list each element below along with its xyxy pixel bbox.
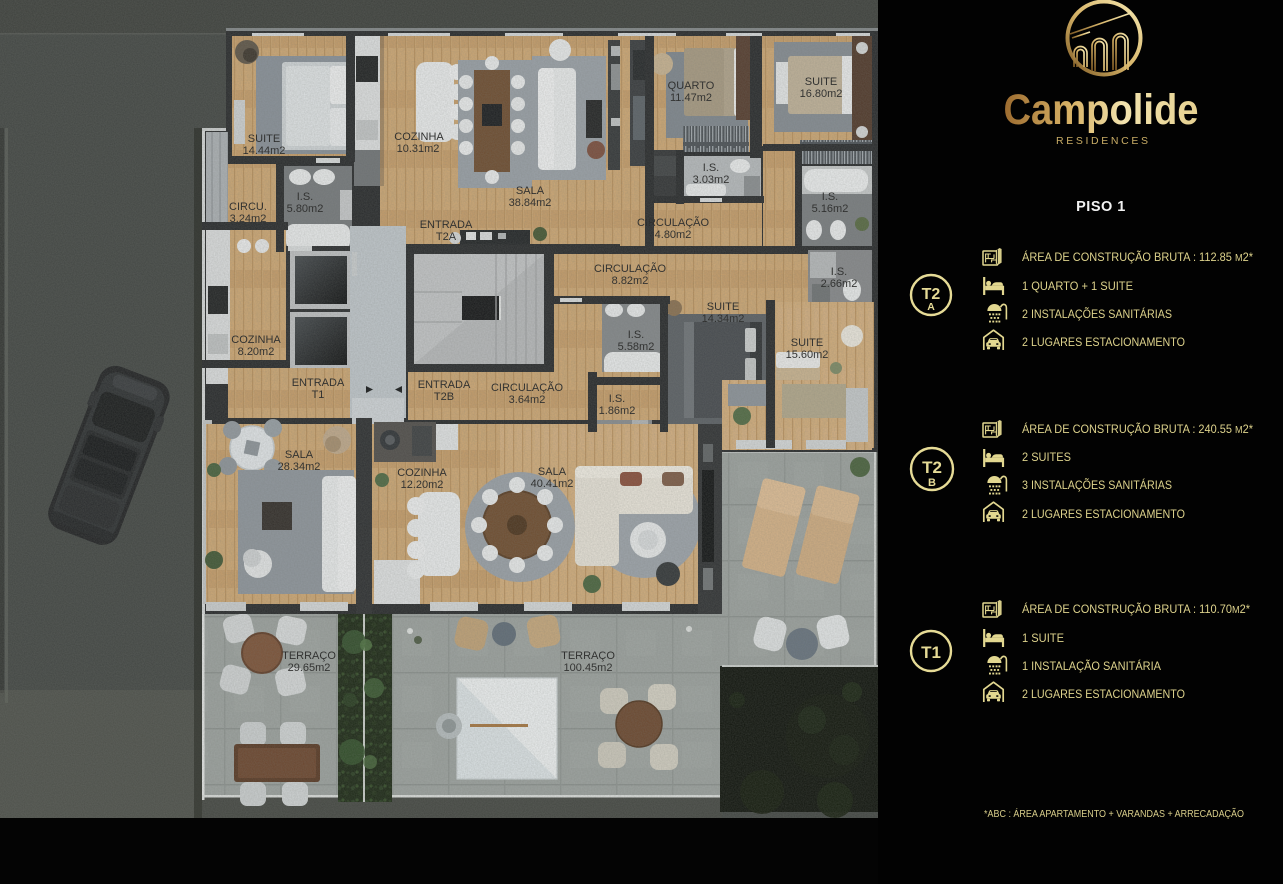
svg-text:2 LUGARES ESTACIONAMENTO: 2 LUGARES ESTACIONAMENTO — [1022, 335, 1185, 349]
svg-text:T1: T1 — [921, 643, 941, 662]
svg-text:ÁREA DE CONSTRUÇÃO BRUTA : 11: ÁREA DE CONSTRUÇÃO BRUTA : 112.85 M2* — [1022, 249, 1253, 264]
svg-text:3 INSTALAÇÕES SANITÁRIAS: 3 INSTALAÇÕES SANITÁRIAS — [1022, 477, 1172, 492]
svg-text:ÁREA DE CONSTRUÇÃO BRUTA : 11: ÁREA DE CONSTRUÇÃO BRUTA : 110.70M2* — [1022, 601, 1250, 616]
svg-text:2 LUGARES ESTACIONAMENTO: 2 LUGARES ESTACIONAMENTO — [1022, 687, 1185, 701]
svg-text:B: B — [928, 477, 936, 489]
svg-text:2 LUGARES ESTACIONAMENTO: 2 LUGARES ESTACIONAMENTO — [1022, 507, 1185, 521]
svg-text:Campolide: Campolide — [1004, 86, 1199, 134]
svg-text:2 SUITES: 2 SUITES — [1022, 450, 1071, 464]
svg-text:*ABC : ÁREA APARTAMENTO + VAR: *ABC : ÁREA APARTAMENTO + VARANDAS + ARR… — [984, 807, 1244, 820]
svg-text:RESIDENCES: RESIDENCES — [1056, 135, 1152, 147]
svg-text:1 SUITE: 1 SUITE — [1022, 631, 1064, 645]
svg-text:A: A — [927, 301, 935, 313]
svg-text:1 QUARTO + 1 SUITE: 1 QUARTO + 1 SUITE — [1022, 279, 1133, 293]
svg-text:ÁREA DE CONSTRUÇÃO BRUTA : 24: ÁREA DE CONSTRUÇÃO BRUTA : 240.55 M2* — [1022, 421, 1253, 436]
svg-text:T2: T2 — [922, 458, 942, 477]
svg-text:1 INSTALAÇÃO SANITÁRIA: 1 INSTALAÇÃO SANITÁRIA — [1022, 658, 1161, 673]
svg-text:2 INSTALAÇÕES SANITÁRIAS: 2 INSTALAÇÕES SANITÁRIAS — [1022, 306, 1172, 321]
svg-text:PISO 1: PISO 1 — [1076, 199, 1126, 215]
